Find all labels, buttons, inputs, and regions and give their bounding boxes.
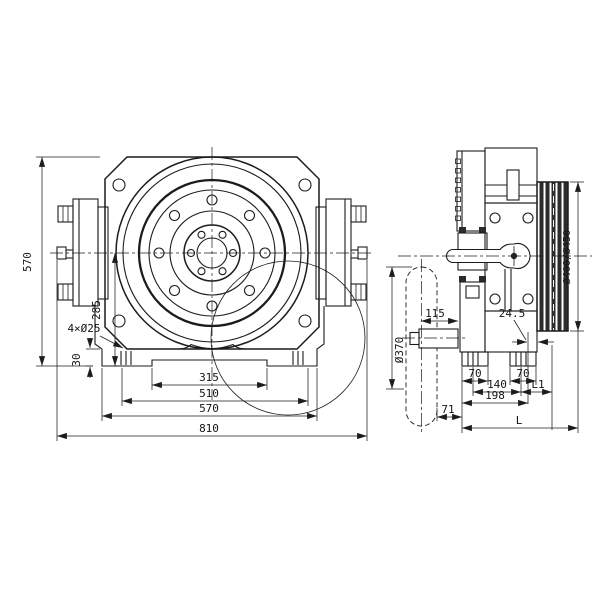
dim-sheave-dia-label: Ø400/Ø450: [561, 230, 573, 284]
dim-base-length: 198: [462, 389, 528, 403]
dim-slot-span-label: 510: [199, 387, 219, 400]
brake-fin-panel: [456, 151, 486, 231]
dim-overall-length-label: L: [516, 414, 523, 427]
dim-mounting-holes-label: 4×Ø25: [67, 322, 100, 335]
brake-caliper: [458, 227, 487, 352]
lifting-bolt: [507, 170, 519, 200]
dim-axis-offset: 115: [421, 307, 458, 321]
machine-base: [95, 306, 324, 366]
dim-overall-length: L: [462, 414, 578, 428]
motor-top-block: [485, 148, 537, 203]
sheave-phantom-circle: [211, 261, 365, 415]
dim-foot-height-label: 30: [70, 353, 83, 366]
dim-overhang: 71: [437, 403, 462, 417]
dim-base-width-label: 570: [199, 402, 219, 415]
dim-groove-offset-label: 24.5: [499, 307, 526, 320]
bracket-left: [57, 199, 108, 306]
dim-total-height-label: 570: [21, 252, 34, 272]
dim-l1-label: L1: [531, 378, 544, 391]
dim-axis-to-base-label: 285: [90, 300, 103, 320]
dim-handwheel-dia-label: Ø370: [393, 337, 406, 364]
dim-front-foot: 70: [462, 367, 488, 381]
dim-handwheel-dia: Ø370: [386, 267, 412, 389]
dim-l1: L1: [521, 378, 552, 392]
dim-overall-width-label: 810: [199, 422, 219, 435]
traction-machine-drawing: 570 285 30 4×Ø25 315: [0, 0, 600, 600]
foot-slot-left: [121, 351, 131, 365]
drawing-page: 570 285 30 4×Ø25 315: [0, 0, 600, 600]
shaft-stub: [410, 329, 458, 348]
dim-front-foot-label: 70: [468, 367, 481, 380]
foot-slot-right: [293, 351, 303, 365]
dim-base-length-label: 198: [485, 389, 505, 402]
dim-feet-inner-span-label: 315: [199, 371, 219, 384]
dim-overhang-label: 71: [441, 403, 454, 416]
dim-rear-foot-label: 70: [516, 367, 529, 380]
dim-axis-offset-label: 115: [425, 307, 445, 320]
bracket-right: [316, 199, 367, 306]
